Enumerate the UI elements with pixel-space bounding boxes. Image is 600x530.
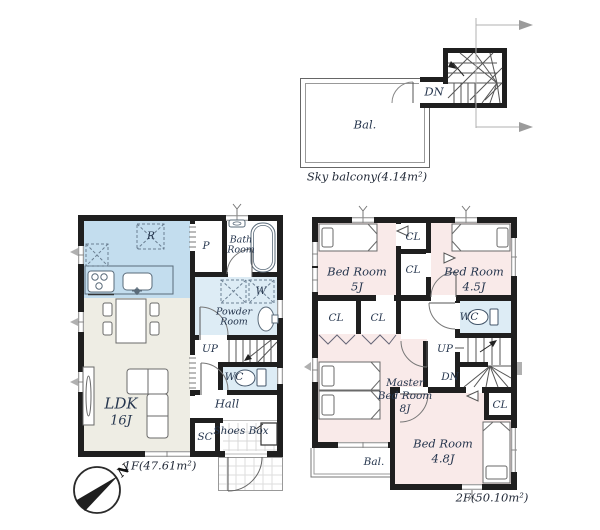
tv-board-icon: [83, 367, 94, 425]
floor2-up-label: UP: [437, 344, 453, 355]
compass-icon: [74, 467, 120, 513]
washer-label: W: [256, 286, 267, 297]
porch: [219, 457, 283, 491]
master-size-label: 8J: [400, 404, 411, 415]
ldk-label: LDK: [104, 397, 137, 412]
closet-top-label: CL: [405, 232, 420, 243]
shoes-box-label: Shoes Box: [213, 426, 268, 437]
closet-mid-label: CL: [405, 265, 420, 276]
bedroom3-size-label: 4.8J: [432, 453, 455, 465]
floor2-stairs-icon: [455, 338, 511, 387]
floor1-caption: 1F(47.61m²): [124, 460, 197, 472]
sky-balcony-label: Bal.: [354, 119, 377, 131]
floor2-caption: 2F(50.10m²): [456, 492, 529, 504]
floor2-wc-label: WC: [460, 312, 479, 323]
pantry-label: P: [202, 241, 209, 252]
hall-label: Hall: [215, 398, 239, 410]
fridge-label: R: [147, 231, 155, 242]
balcony2-label: Bal.: [364, 457, 385, 468]
floor1-wc-label: WC: [225, 372, 244, 383]
bedroom1-size-label: 5J: [351, 281, 363, 293]
floor2-dn-label: DN: [441, 372, 459, 383]
floor2-plan: [304, 206, 522, 501]
ldk-size-label: 16J: [110, 415, 132, 428]
closet-br-label: CL: [492, 400, 507, 411]
sky-balcony-plan: [301, 18, 534, 168]
sky-stairs-icon: [448, 53, 502, 103]
floor-plan-page: Bal. DN Sky balcony(4.14m²) R P Bath Roo…: [0, 0, 600, 530]
vent-icon: [233, 204, 241, 215]
bedroom3-label: Bed Room: [413, 438, 473, 450]
floor-plan-drawing: [0, 0, 600, 530]
closet-a-label: CL: [328, 313, 343, 324]
floor1-up-label: UP: [202, 344, 218, 355]
bath-room-label-2: Room: [227, 245, 255, 255]
sky-dn-label: DN: [424, 86, 443, 98]
sky-balcony-caption: Sky balcony(4.14m²): [307, 171, 427, 183]
bedroom1-label: Bed Room: [327, 266, 387, 278]
bedroom2-size-label: 4.5J: [463, 281, 486, 293]
floor1-stairs-icon: [229, 340, 277, 362]
sc-label: SC: [197, 432, 212, 443]
master-label-2: Bed Room: [378, 391, 433, 402]
powder-room-label-2: Room: [220, 317, 248, 327]
bedroom2-label: Bed Room: [444, 266, 504, 278]
closet-b-label: CL: [370, 313, 385, 324]
master-label-1: Master: [386, 378, 424, 389]
